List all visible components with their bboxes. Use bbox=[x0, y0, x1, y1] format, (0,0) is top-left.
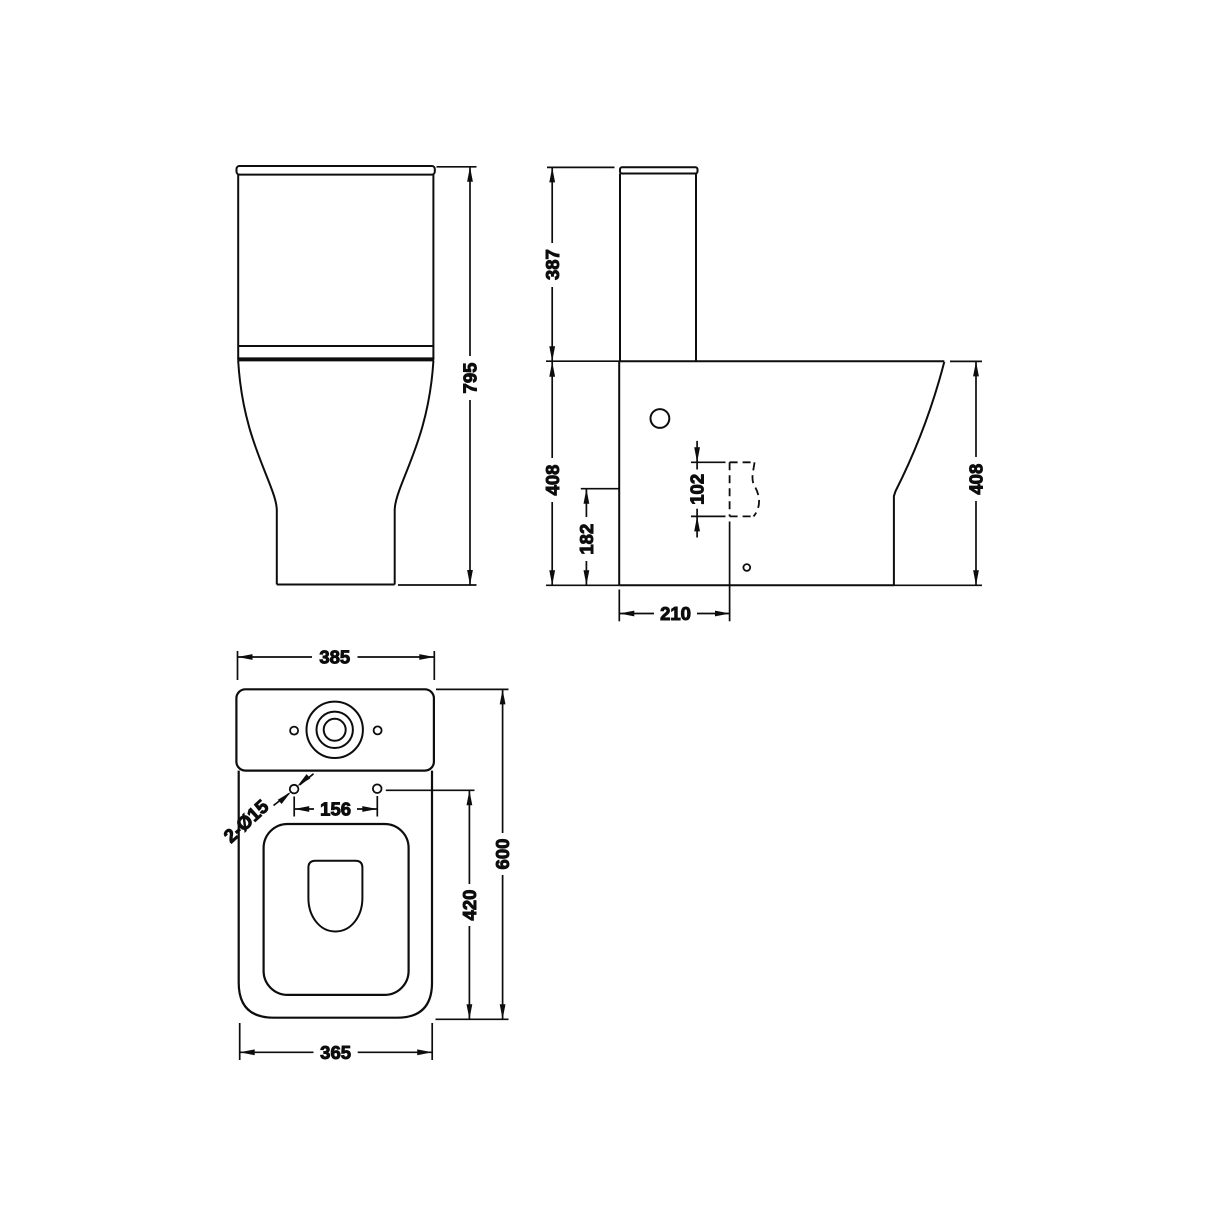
svg-text:182: 182 bbox=[576, 524, 597, 555]
svg-text:210: 210 bbox=[660, 603, 691, 624]
svg-text:102: 102 bbox=[687, 474, 708, 505]
svg-text:365: 365 bbox=[320, 1042, 351, 1063]
svg-text:408: 408 bbox=[966, 464, 987, 495]
svg-text:156: 156 bbox=[320, 799, 351, 820]
svg-text:387: 387 bbox=[542, 249, 563, 280]
svg-text:385: 385 bbox=[319, 647, 350, 668]
svg-text:408: 408 bbox=[542, 465, 563, 496]
svg-text:600: 600 bbox=[492, 839, 513, 870]
svg-text:795: 795 bbox=[460, 363, 481, 394]
svg-text:420: 420 bbox=[459, 890, 480, 921]
